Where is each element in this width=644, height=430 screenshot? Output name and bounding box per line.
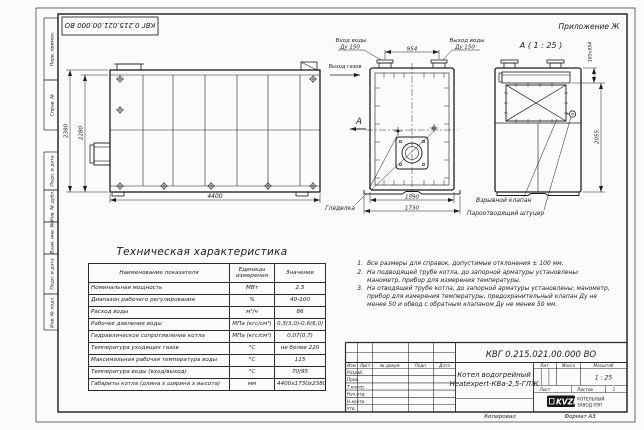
col-header-izm: Изм (347, 363, 356, 368)
table-row: Габариты котла (длина х ширина х высота)… (89, 379, 326, 391)
outlet-size-label: Ду 150 (454, 45, 475, 51)
spec-cell-name: Рабочее давление воды (89, 319, 230, 331)
product-name-line2: Heatexpert-КВа-2,5-ГЛЖ (450, 380, 539, 388)
logo-text: KVZR (556, 398, 579, 407)
bolt-marks (116, 75, 317, 190)
spec-cell-value: 2,5 (275, 283, 326, 295)
note-item: 3. На отводящей трубе котла, до запорной… (352, 285, 610, 308)
scale-value: 1 : 25 (595, 375, 612, 382)
row-label-nachotd: Нач.отд. (347, 392, 366, 397)
spec-header-name: Наименование показателя (89, 264, 230, 283)
margin-label: Подп. и дата (50, 155, 56, 186)
designation-stamp-rotated: КВГ 0.215.021.00.000 ВО (64, 21, 155, 29)
col-header-data: Дата (438, 363, 450, 368)
spec-cell-units: МПа (кгс/см²) (230, 331, 275, 343)
note-number: 3. (352, 285, 363, 308)
row-label-razrab: Разраб. (347, 370, 363, 375)
table-row: Температура воды (вход/выход) °С 70/95 (89, 367, 326, 379)
dim-4400: 4400 (207, 193, 222, 200)
spec-cell-value: 70/95 (275, 367, 326, 379)
sheet-label: Лист (539, 387, 551, 392)
spec-cell-value: 4400х1730х2380 (275, 379, 326, 391)
spec-cell-value: не более 220 (275, 343, 326, 355)
row-label-prov: Пров. (347, 377, 359, 382)
spec-cell-name: Расход воды (89, 307, 230, 319)
front-view-linework (364, 60, 460, 196)
note-text: На отводящей трубе котла, до запорной ар… (367, 285, 610, 308)
spec-cell-value: 0,07(0,7) (275, 331, 326, 343)
spec-cell-units: м³/ч (230, 307, 275, 319)
inlet-label: Вход воды (336, 38, 367, 44)
section-view-title: А ( 1 : 25 ) (519, 41, 562, 50)
spec-cell-value: 115 (275, 355, 326, 367)
spec-cell-value: 86 (275, 307, 326, 319)
row-label-tkontr: Т.контр. (347, 384, 365, 389)
spec-header-row: Наименование показателя Единицы измерени… (89, 264, 326, 283)
spec-cell-value: 40-100 (275, 295, 326, 307)
spec-cell-name: Максимальная рабочая температура воды (89, 355, 230, 367)
section-letter: А (355, 117, 362, 127)
spec-header-value: Значение (275, 264, 326, 283)
product-name-line1: Котел водогрейный (457, 371, 531, 379)
dim-2280: 2280 (79, 126, 85, 140)
logo-line1: КОТЕЛЬНЫЙ (577, 397, 604, 402)
table-row: Расход воды м³/ч 86 (89, 307, 326, 319)
row-label-nkontr: Н.контр. (347, 399, 366, 404)
table-row: Диапазон рабочего регулирования % 40-100 (89, 295, 326, 307)
spec-header-units: Единицы измерения (230, 264, 275, 283)
explosion-valve-label: Взрывной клапан (476, 197, 532, 204)
spec-cell-units: °С (230, 355, 275, 367)
lit-header: Лит. (539, 363, 550, 368)
note-number: 2. (352, 269, 363, 285)
col-header-doc: № докум. (379, 363, 401, 368)
drawing-sheet: { "frame": { "stamp_rotated": "КВГ 0.215… (0, 0, 644, 430)
company-logo: KVZR КОТЕЛЬНЫЙ ЗАВОД РЭП (547, 396, 604, 408)
note-item: 1. Все размеры для справок, допустимые о… (352, 260, 610, 268)
note-text: Все размеры для справок, допустимые откл… (367, 260, 610, 268)
dim-1590: 1590 (405, 195, 419, 201)
spec-cell-name: Температура уходящих газов (89, 343, 230, 355)
spec-cell-units: МВт (230, 283, 275, 295)
row-label-utv: Утв. (347, 406, 356, 411)
spec-cell-name: Номинальная мощность (89, 283, 230, 295)
margin-label: Инв. № подл. (50, 296, 56, 328)
table-row: Температура уходящих газов °С не более 2… (89, 343, 326, 355)
spec-table-title: Техническая характеристика (88, 246, 316, 258)
outlet-label: Выход воды (449, 38, 485, 44)
note-text: На подводящей трубе котла, до запорной а… (367, 269, 610, 285)
spec-cell-units: % (230, 295, 275, 307)
dim-2055: 2055 (595, 130, 601, 144)
sheets-label: Листов (576, 387, 593, 392)
table-row: Гидравлическое сопротивление котла МПа (… (89, 331, 326, 343)
spec-cell-units: МПа (кгс/см²) (230, 319, 275, 331)
spec-cell-name: Габариты котла (длина х ширина х высота) (89, 379, 230, 391)
margin-label: Подп. и дата (50, 258, 56, 289)
sight-glass-label: Гляделка (325, 205, 355, 212)
dim-954: 954 (407, 47, 418, 53)
spec-table-block: Техническая характеристика Наименование … (88, 246, 316, 391)
spec-cell-units: мм (230, 379, 275, 391)
front-view-labels: Вход воды Ду 150 Выход воды Ду 150 954 В… (325, 38, 485, 212)
steam-nozzle-label: Пароотводящий штуцер (467, 210, 544, 217)
note-item: 2. На подводящей трубе котла, до запорно… (352, 269, 610, 285)
col-header-podp: Подп. (415, 363, 428, 368)
margin-label: Инв. № дубл. (50, 190, 56, 221)
spec-cell-units: °С (230, 367, 275, 379)
spec-cell-value: 0,3(3,0)-0,6(6,0) (275, 319, 326, 331)
gas-outlet-label: Выход газов (329, 64, 362, 70)
table-row: Номинальная мощность МВт 2,5 (89, 283, 326, 295)
logo-line2: ЗАВОД РЭП (577, 403, 602, 408)
spec-cell-units: °С (230, 343, 275, 355)
dim-2380: 2380 (64, 124, 70, 138)
copied-label: Копировал (484, 414, 516, 420)
section-view-annotations (524, 68, 605, 210)
margin-label: Справ. № (50, 94, 56, 117)
margin-label: Перв. примен. (50, 32, 56, 67)
spec-table: Наименование показателя Единицы измерени… (88, 263, 326, 391)
table-row: Максимальная рабочая температура воды °С… (89, 355, 326, 367)
side-view-dims (66, 70, 320, 203)
dim-1730: 1730 (405, 206, 419, 212)
doc-number: КВГ 0.215.021.00.000 ВО (486, 350, 597, 360)
dim-185x954: 185х954 (588, 42, 594, 62)
side-view-linework (90, 62, 320, 196)
scale-header: Масштаб (594, 363, 614, 368)
spec-cell-name: Температура воды (вход/выход) (89, 367, 230, 379)
sheets-value: 1 (613, 387, 616, 392)
format-label: Формат А3 (564, 414, 596, 420)
spec-cell-name: Гидравлическое сопротивление котла (89, 331, 230, 343)
mass-header: Масса (562, 363, 576, 368)
appendix-label: Приложение Ж (559, 22, 621, 31)
note-number: 1. (352, 260, 363, 268)
spec-cell-name: Диапазон рабочего регулирования (89, 295, 230, 307)
inlet-size-label: Ду 150 (339, 45, 360, 51)
notes-block: 1. Все размеры для справок, допустимые о… (352, 260, 610, 310)
col-header-list: Лист (359, 363, 371, 368)
table-row: Рабочее давление воды МПа (кгс/см²) 0,3(… (89, 319, 326, 331)
margin-label: Взам. инв. № (50, 222, 56, 253)
